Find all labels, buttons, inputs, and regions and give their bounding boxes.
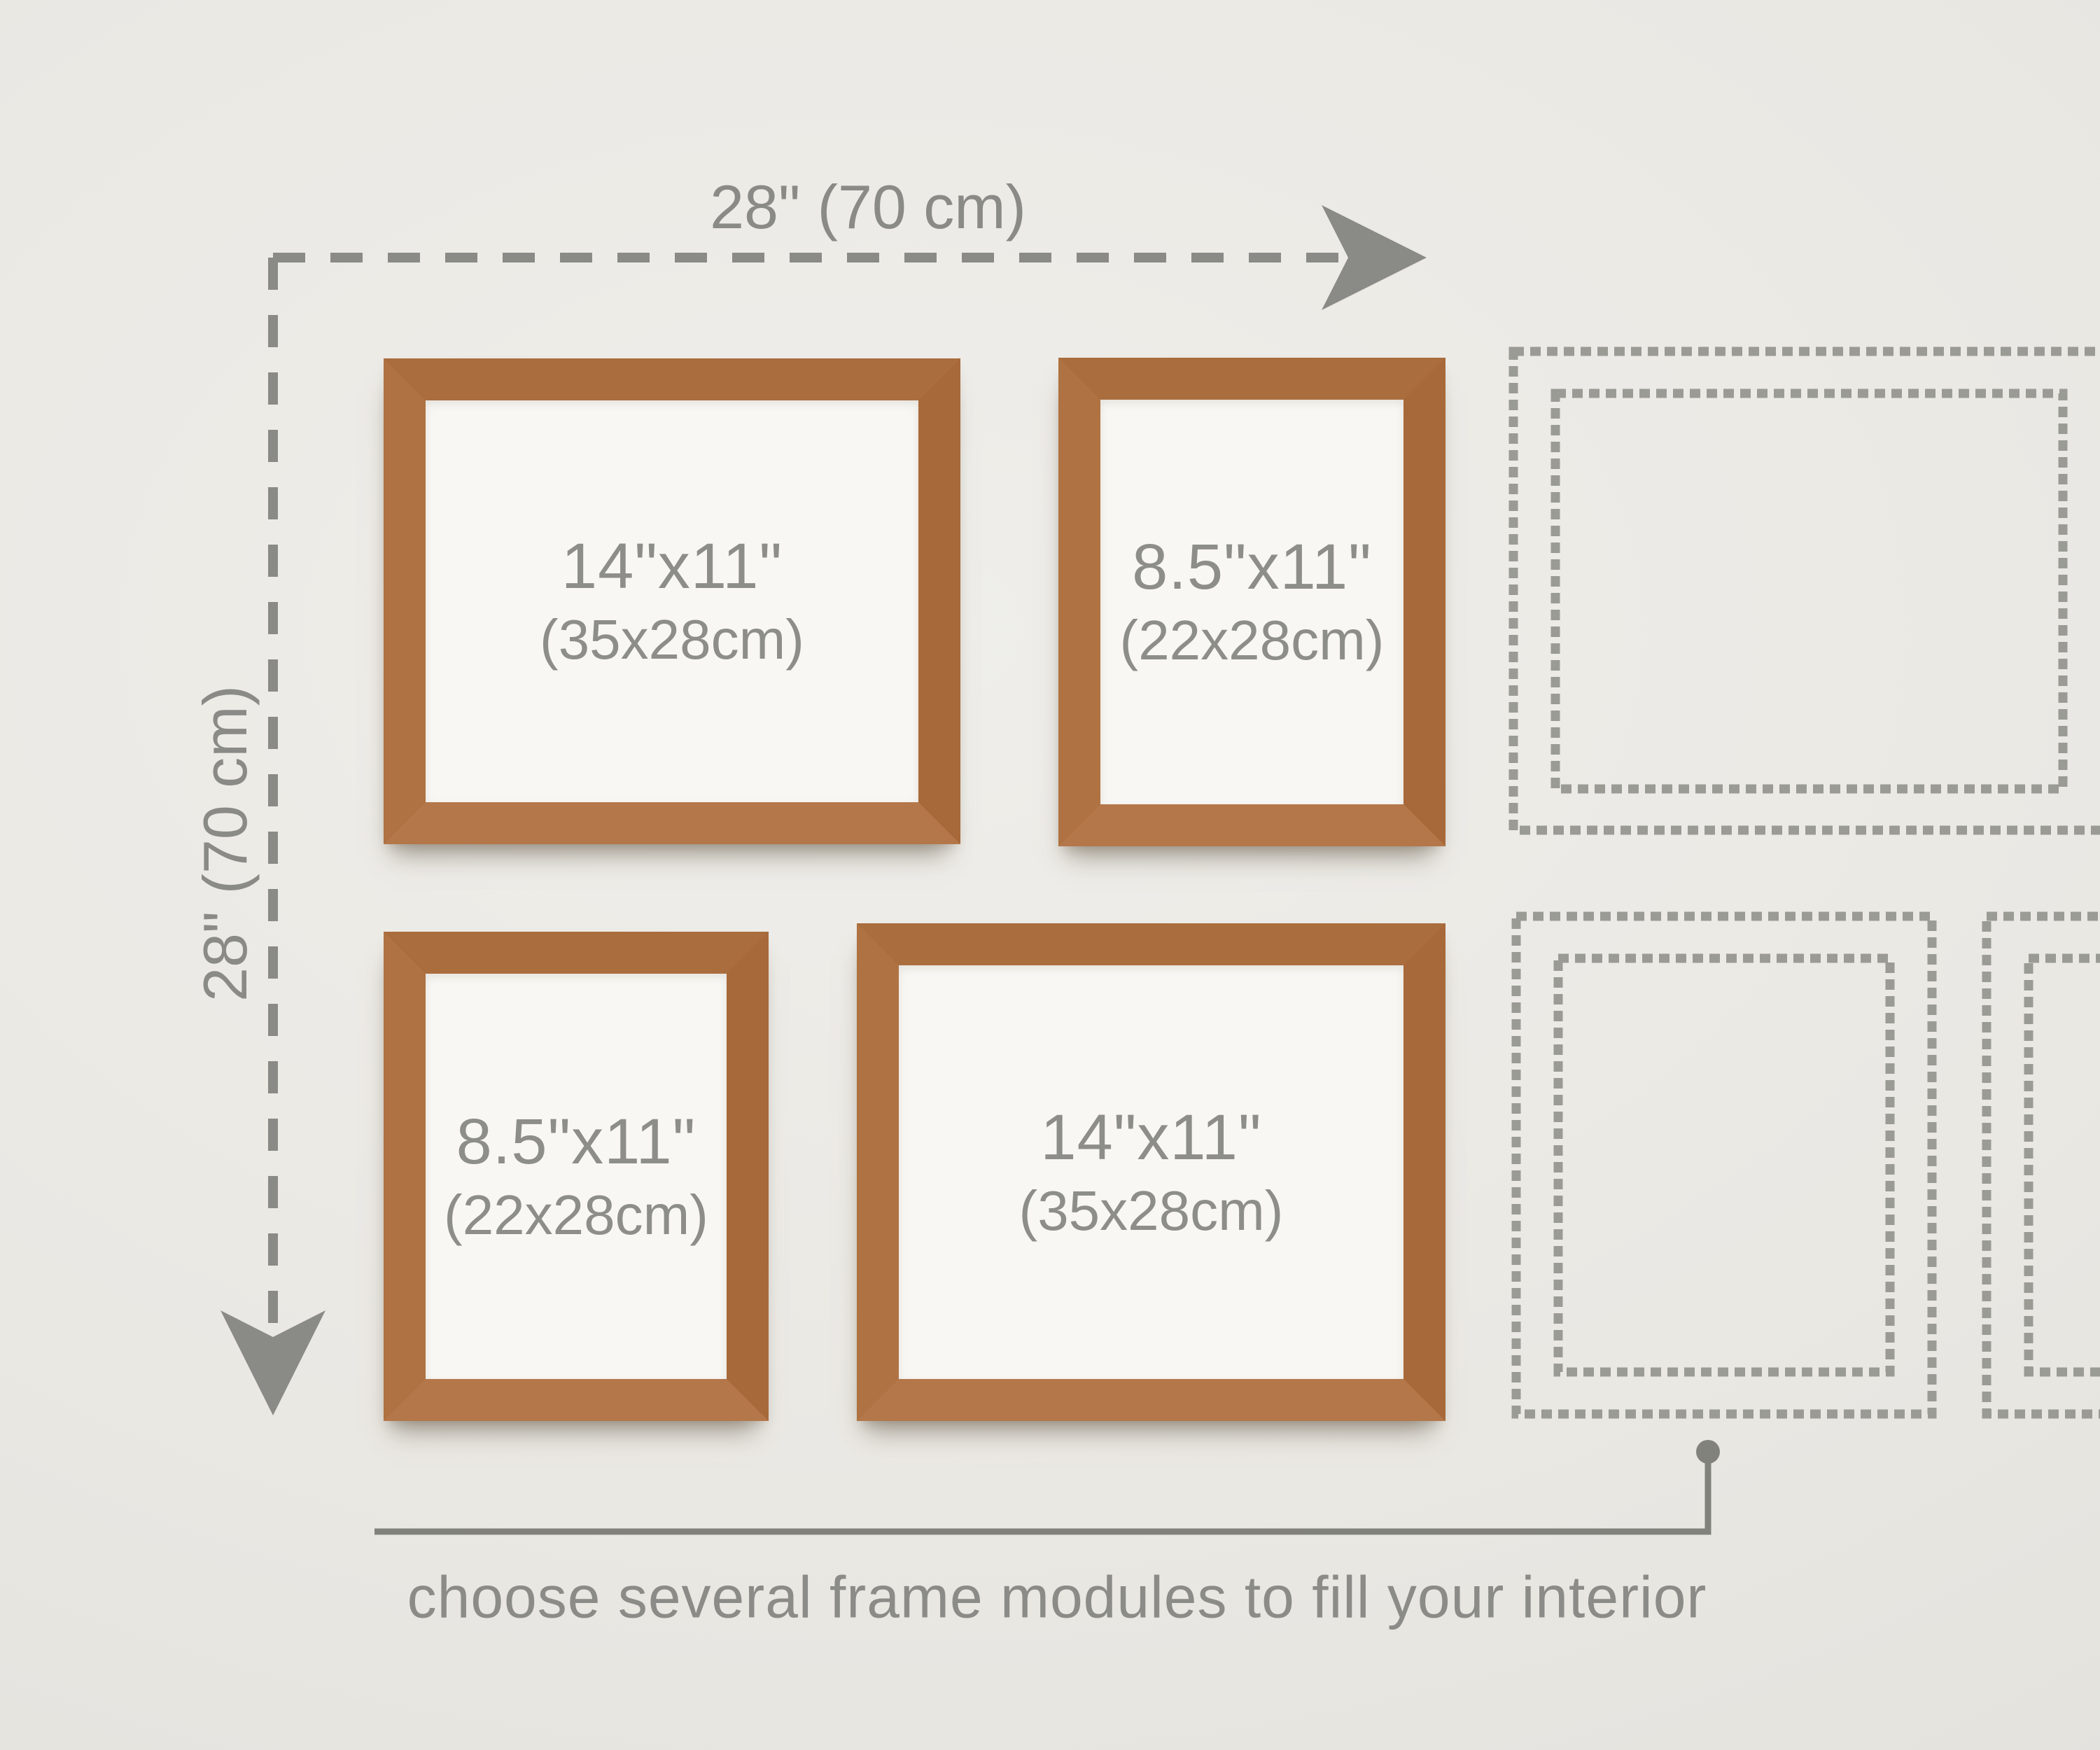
- placeholder-frame-right-top-outer: [1513, 351, 2100, 830]
- size-inches: 14"x11": [540, 532, 804, 601]
- size-centimeters: (22x28cm): [1120, 610, 1385, 671]
- wood-frame-bottom-right-14x11: 14"x11" (35x28cm): [857, 923, 1445, 1421]
- frame-size-label: 14"x11" (35x28cm): [1019, 1103, 1284, 1242]
- wood-frame-top-right-8.5x11: 8.5"x11" (22x28cm): [1058, 358, 1445, 846]
- placeholder-frame-right-bottom-inner: [1558, 958, 1890, 1372]
- placeholder-frame-right-bottom-partial-inner: [2029, 958, 2100, 1372]
- caption-callout-line: [374, 1463, 1708, 1532]
- size-inches: 8.5"x11": [444, 1107, 708, 1177]
- vertical-dimension-label: 28" (70 cm): [190, 685, 261, 1002]
- frame-size-label: 8.5"x11" (22x28cm): [444, 1107, 708, 1246]
- size-centimeters: (35x28cm): [540, 610, 804, 670]
- callout-dot-icon: [1696, 1440, 1720, 1464]
- wood-frame-bottom-left-8.5x11: 8.5"x11" (22x28cm): [384, 932, 769, 1421]
- caption-text: choose several frame modules to fill you…: [407, 1564, 1707, 1632]
- placeholder-frame-right-bottom-outer: [1516, 916, 1932, 1414]
- frame-size-label: 14"x11" (35x28cm): [540, 532, 804, 671]
- annotation-overlay: [0, 0, 2100, 1750]
- size-centimeters: (22x28cm): [444, 1185, 708, 1245]
- size-inches: 8.5"x11": [1120, 533, 1385, 602]
- frame-size-label: 8.5"x11" (22x28cm): [1120, 533, 1385, 671]
- size-inches: 14"x11": [1019, 1103, 1284, 1172]
- placeholder-frame-right-top-inner: [1555, 393, 2063, 789]
- placeholder-frame-right-bottom-partial-outer: [1987, 916, 2100, 1414]
- size-centimeters: (35x28cm): [1019, 1181, 1284, 1241]
- gallery-wall-scene: 28" (70 cm) 28" (70 cm) 14"x11" (35x28cm…: [0, 0, 2100, 1750]
- wood-frame-top-left-14x11: 14"x11" (35x28cm): [384, 358, 960, 844]
- down-arrowhead-icon: [220, 1310, 325, 1415]
- horizontal-dimension-label: 28" (70 cm): [710, 171, 1026, 243]
